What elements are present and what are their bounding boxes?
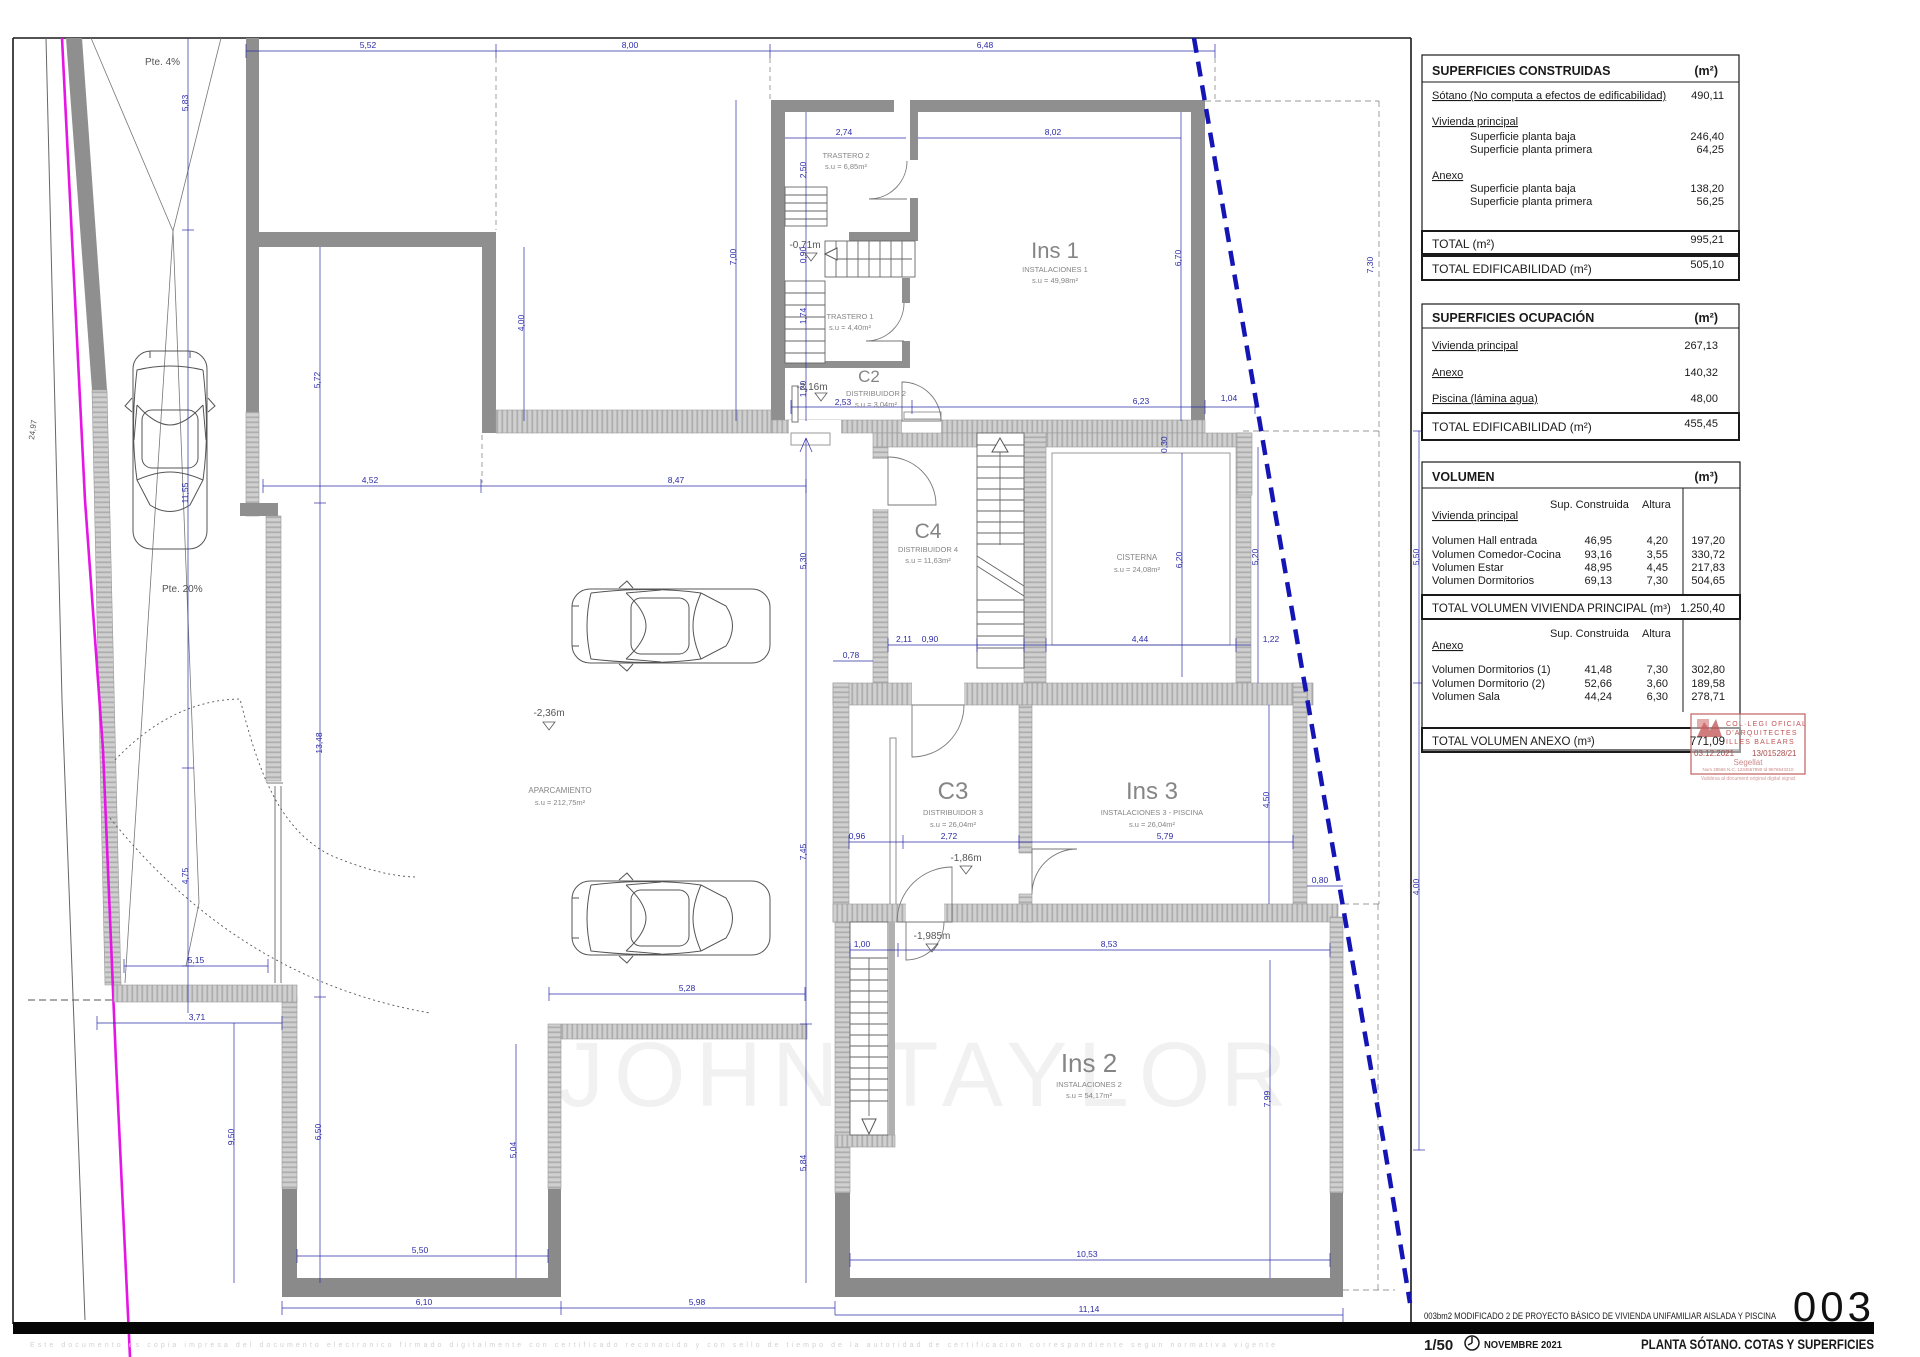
svg-text:4,75: 4,75 [180, 867, 190, 884]
svg-text:SUPERFICIES CONSTRUIDAS: SUPERFICIES CONSTRUIDAS [1432, 64, 1611, 78]
svg-text:2,53: 2,53 [835, 397, 852, 407]
svg-text:C2: C2 [858, 367, 880, 386]
svg-text:46,95: 46,95 [1584, 535, 1612, 547]
svg-text:4,52: 4,52 [362, 475, 379, 485]
svg-text:Superficie planta primera: Superficie planta primera [1470, 144, 1593, 156]
svg-text:5,98: 5,98 [689, 1297, 706, 1307]
svg-text:Pte. 20%: Pte. 20% [162, 584, 203, 595]
svg-text:995,21: 995,21 [1690, 234, 1724, 246]
svg-text:(m³): (m³) [1694, 470, 1718, 484]
svg-text:5,30: 5,30 [798, 552, 808, 569]
svg-text:s.u = 49,98m²: s.u = 49,98m² [1032, 276, 1079, 285]
svg-text:6,23: 6,23 [1133, 396, 1150, 406]
svg-text:Ins 2: Ins 2 [1061, 1048, 1117, 1078]
svg-text:s.u = 6,85m²: s.u = 6,85m² [825, 162, 867, 171]
svg-text:Segellat: Segellat [1734, 758, 1764, 767]
svg-text:Altura: Altura [1642, 628, 1672, 640]
svg-text:8,02: 8,02 [1045, 127, 1062, 137]
svg-text:JOHN TAYLOR: JOHN TAYLOR [558, 1024, 1297, 1126]
svg-text:267,13: 267,13 [1684, 340, 1718, 352]
svg-text:2,72: 2,72 [941, 831, 958, 841]
svg-text:TRASTERO 2: TRASTERO 2 [822, 151, 869, 160]
svg-text:5,50: 5,50 [412, 1245, 429, 1255]
svg-text:7,30: 7,30 [1647, 575, 1668, 587]
svg-text:s.u = 54,17m²: s.u = 54,17m² [1066, 1091, 1113, 1100]
svg-text:-1,985m: -1,985m [914, 931, 951, 942]
svg-text:0,78: 0,78 [843, 650, 860, 660]
svg-text:771,09: 771,09 [1690, 736, 1725, 748]
svg-text:0,90: 0,90 [922, 634, 939, 644]
svg-text:93,16: 93,16 [1584, 549, 1612, 561]
svg-text:C3: C3 [938, 778, 969, 805]
svg-text:s.u = 212,75m²: s.u = 212,75m² [535, 798, 586, 807]
svg-text:-2,36m: -2,36m [533, 708, 564, 719]
svg-text:2,50: 2,50 [798, 161, 808, 178]
svg-text:INSTALACIONES 1: INSTALACIONES 1 [1022, 265, 1088, 274]
svg-text:4,45: 4,45 [1647, 562, 1668, 574]
svg-text:3,55: 3,55 [1647, 549, 1668, 561]
svg-text:Volumen Sala: Volumen Sala [1432, 691, 1501, 703]
svg-text:Superficie planta baja: Superficie planta baja [1470, 131, 1577, 143]
svg-text:5,83: 5,83 [180, 94, 190, 111]
svg-text:302,80: 302,80 [1691, 664, 1725, 676]
svg-text:5,72: 5,72 [312, 371, 322, 388]
svg-text:505,10: 505,10 [1690, 259, 1724, 271]
svg-text:(m²): (m²) [1694, 311, 1718, 325]
svg-text:48,00: 48,00 [1690, 393, 1718, 405]
svg-text:4,44: 4,44 [1132, 634, 1149, 644]
svg-text:2,74: 2,74 [836, 127, 853, 137]
svg-text:0,96: 0,96 [849, 831, 866, 841]
svg-text:COL·LEGI OFICIAL: COL·LEGI OFICIAL [1726, 721, 1807, 728]
svg-text:s.u = 26,04m²: s.u = 26,04m² [1129, 820, 1176, 829]
svg-text:Piscina (lámina agua): Piscina (lámina agua) [1432, 393, 1538, 405]
svg-text:330,72: 330,72 [1691, 549, 1725, 561]
svg-text:TOTAL EDIFICABILIDAD (m²): TOTAL EDIFICABILIDAD (m²) [1432, 262, 1592, 276]
svg-text:-1,86m: -1,86m [950, 853, 981, 864]
svg-text:TOTAL VOLUMEN VIVIENDA PRINCIP: TOTAL VOLUMEN VIVIENDA PRINCIPAL (m³) [1432, 603, 1671, 615]
svg-text:s.u = 24,08m²: s.u = 24,08m² [1114, 565, 1161, 574]
svg-text:TOTAL EDIFICABILIDAD (m²): TOTAL EDIFICABILIDAD (m²) [1432, 420, 1592, 434]
svg-text:189,58: 189,58 [1691, 678, 1725, 690]
svg-text:6,50: 6,50 [313, 1123, 323, 1140]
svg-text:11,55: 11,55 [180, 482, 190, 503]
svg-text:69,13: 69,13 [1584, 575, 1612, 587]
svg-text:5,52: 5,52 [360, 40, 377, 50]
svg-text:4,00: 4,00 [516, 314, 526, 331]
svg-text:Volumen Dormitorio (2): Volumen Dormitorio (2) [1432, 678, 1545, 690]
svg-text:Ins 1: Ins 1 [1031, 238, 1079, 263]
svg-text:41,48: 41,48 [1584, 664, 1612, 676]
svg-text:Volumen Comedor-Cocina: Volumen Comedor-Cocina [1432, 549, 1562, 561]
svg-text:TOTAL (m²): TOTAL (m²) [1432, 237, 1494, 251]
svg-text:5,20: 5,20 [1250, 548, 1260, 565]
svg-text:246,40: 246,40 [1690, 131, 1724, 143]
svg-text:s.u = 26,04m²: s.u = 26,04m² [930, 820, 977, 829]
svg-text:Sótano (No computa a efectos d: Sótano (No computa a efectos de edificab… [1432, 90, 1666, 102]
svg-text:8,53: 8,53 [1101, 939, 1118, 949]
svg-text:Validesa al document original: Validesa al document original digital si… [1701, 776, 1796, 782]
svg-text:Sup. Construida: Sup. Construida [1550, 628, 1630, 640]
svg-text:ILLES BALEARS: ILLES BALEARS [1726, 739, 1795, 746]
svg-text:Anexo: Anexo [1432, 367, 1463, 379]
svg-text:7,30: 7,30 [1365, 256, 1375, 273]
svg-text:Ins 3: Ins 3 [1126, 778, 1178, 805]
svg-text:INSTALACIONES 3 - PISCINA: INSTALACIONES 3 - PISCINA [1101, 808, 1203, 817]
svg-text:s.u = 11,63m²: s.u = 11,63m² [905, 556, 951, 565]
svg-text:Volumen Dormitorios: Volumen Dormitorios [1432, 575, 1535, 587]
svg-text:9,50: 9,50 [226, 1128, 236, 1145]
svg-text:2,11: 2,11 [896, 634, 912, 644]
svg-text:56,25: 56,25 [1696, 196, 1724, 208]
svg-text:6,30: 6,30 [1647, 691, 1668, 703]
svg-text:8,47: 8,47 [668, 475, 685, 485]
svg-text:504,65: 504,65 [1691, 575, 1725, 587]
svg-text:7,45: 7,45 [798, 843, 808, 860]
svg-text:52,66: 52,66 [1584, 678, 1612, 690]
svg-text:3,71: 3,71 [189, 1012, 206, 1022]
svg-text:Altura: Altura [1642, 499, 1672, 511]
svg-text:DISTRIBUIDOR 2: DISTRIBUIDOR 2 [846, 389, 906, 398]
svg-text:3,60: 3,60 [1647, 678, 1668, 690]
svg-text:1/50: 1/50 [1424, 1337, 1453, 1354]
svg-text:4,20: 4,20 [1647, 535, 1668, 547]
svg-text:003: 003 [1793, 1283, 1875, 1330]
svg-text:140,32: 140,32 [1684, 367, 1718, 379]
svg-text:1,74: 1,74 [798, 307, 808, 324]
svg-text:1.250,40: 1.250,40 [1680, 603, 1725, 615]
svg-text:138,20: 138,20 [1690, 183, 1724, 195]
svg-text:490,11: 490,11 [1691, 90, 1724, 102]
svg-text:5,15: 5,15 [188, 955, 205, 965]
svg-text:64,25: 64,25 [1696, 144, 1724, 156]
svg-text:7,99: 7,99 [1262, 1090, 1272, 1107]
svg-text:VOLUMEN: VOLUMEN [1432, 470, 1495, 484]
svg-text:-0,71m: -0,71m [789, 240, 820, 251]
svg-text:Este documento es copia impres: Este documento es copia impresa del docu… [30, 1342, 1275, 1349]
svg-text:Superficie planta primera: Superficie planta primera [1470, 196, 1593, 208]
svg-text:6,10: 6,10 [416, 1297, 433, 1307]
svg-text:5,79: 5,79 [1157, 831, 1174, 841]
svg-text:NOVEMBRE 2021: NOVEMBRE 2021 [1484, 1340, 1562, 1351]
svg-text:Superficie planta baja: Superficie planta baja [1470, 183, 1577, 195]
svg-text:03.12.2021: 03.12.2021 [1694, 749, 1735, 758]
svg-text:10,53: 10,53 [1076, 1249, 1098, 1259]
svg-text:s.u = 4,40m²: s.u = 4,40m² [829, 323, 871, 332]
svg-text:Volumen Hall entrada: Volumen Hall entrada [1432, 535, 1538, 547]
svg-text:1,04: 1,04 [1221, 393, 1238, 403]
svg-text:5,28: 5,28 [679, 983, 696, 993]
svg-text:(m²): (m²) [1694, 64, 1718, 78]
svg-text:Sup. Construida: Sup. Construida [1550, 499, 1630, 511]
svg-text:6,70: 6,70 [1173, 249, 1183, 266]
svg-text:PLANTA SÓTANO. COTAS Y SUPERFI: PLANTA SÓTANO. COTAS Y SUPERFICIES [1641, 1337, 1874, 1352]
svg-text:455,45: 455,45 [1684, 418, 1718, 430]
svg-text:4,00: 4,00 [1411, 878, 1421, 895]
svg-text:Pte. 4%: Pte. 4% [145, 57, 180, 68]
svg-text:TOTAL VOLUMEN ANEXO (m³): TOTAL VOLUMEN ANEXO (m³) [1432, 736, 1595, 748]
svg-text:4,50: 4,50 [1261, 791, 1271, 808]
svg-text:6,20: 6,20 [1174, 551, 1184, 568]
svg-text:-2,16m: -2,16m [796, 382, 827, 393]
svg-text:8,00: 8,00 [622, 40, 639, 50]
svg-text:5,50: 5,50 [1411, 548, 1421, 565]
svg-text:DISTRIBUIDOR 3: DISTRIBUIDOR 3 [923, 808, 983, 817]
svg-text:Volumen Dormitorios (1): Volumen Dormitorios (1) [1432, 664, 1551, 676]
svg-text:Volumen Estar: Volumen Estar [1432, 562, 1504, 574]
svg-text:7,30: 7,30 [1647, 664, 1668, 676]
svg-text:CISTERNA: CISTERNA [1117, 553, 1158, 562]
svg-text:13,48: 13,48 [314, 732, 324, 754]
svg-text:s.u = 3,04m²: s.u = 3,04m² [855, 400, 897, 409]
svg-text:0,30: 0,30 [1159, 436, 1169, 453]
svg-text:INSTALACIONES 2: INSTALACIONES 2 [1056, 1080, 1122, 1089]
svg-text:APARCAMIENTO: APARCAMIENTO [528, 786, 591, 795]
svg-text:217,83: 217,83 [1691, 562, 1725, 574]
svg-text:5,04: 5,04 [508, 1141, 518, 1158]
svg-text:1,00: 1,00 [854, 939, 871, 949]
svg-text:SUPERFICIES OCUPACIÓN: SUPERFICIES OCUPACIÓN [1432, 310, 1594, 325]
svg-text:1,22: 1,22 [1263, 634, 1280, 644]
svg-text:TRASTERO 1: TRASTERO 1 [826, 312, 873, 321]
svg-text:DISTRIBUIDOR 4: DISTRIBUIDOR 4 [898, 545, 958, 554]
svg-text:Anexo: Anexo [1432, 640, 1463, 652]
svg-text:44,24: 44,24 [1584, 691, 1612, 703]
svg-text:Vivienda principal: Vivienda principal [1432, 116, 1518, 128]
svg-text:6,48: 6,48 [977, 40, 994, 50]
svg-text:0,80: 0,80 [1312, 875, 1329, 885]
svg-text:003bm2 MODIFICADO 2 DE PROYE: 003bm2 MODIFICADO 2 DE PROYECTO BÁSICO D… [1424, 1311, 1777, 1322]
svg-text:D'ARQUITECTES: D'ARQUITECTES [1726, 730, 1798, 737]
svg-text:13/01528/21: 13/01528/21 [1752, 749, 1797, 758]
svg-text:7,00: 7,00 [728, 248, 738, 265]
svg-text:5,84: 5,84 [798, 1154, 808, 1171]
svg-text:11,14: 11,14 [1079, 1304, 1100, 1314]
svg-text:197,20: 197,20 [1691, 535, 1725, 547]
svg-text:48,95: 48,95 [1584, 562, 1612, 574]
svg-text:Anexo: Anexo [1432, 170, 1463, 182]
svg-text:C4: C4 [915, 520, 942, 543]
svg-text:Vivienda principal: Vivienda principal [1432, 510, 1518, 522]
svg-text:Num 28566 N.C. 1234567890 Id 9: Num 28566 N.C. 1234567890 Id 9876543210 [1702, 767, 1794, 772]
svg-text:278,71: 278,71 [1691, 691, 1725, 703]
svg-text:Vivienda principal: Vivienda principal [1432, 340, 1518, 352]
